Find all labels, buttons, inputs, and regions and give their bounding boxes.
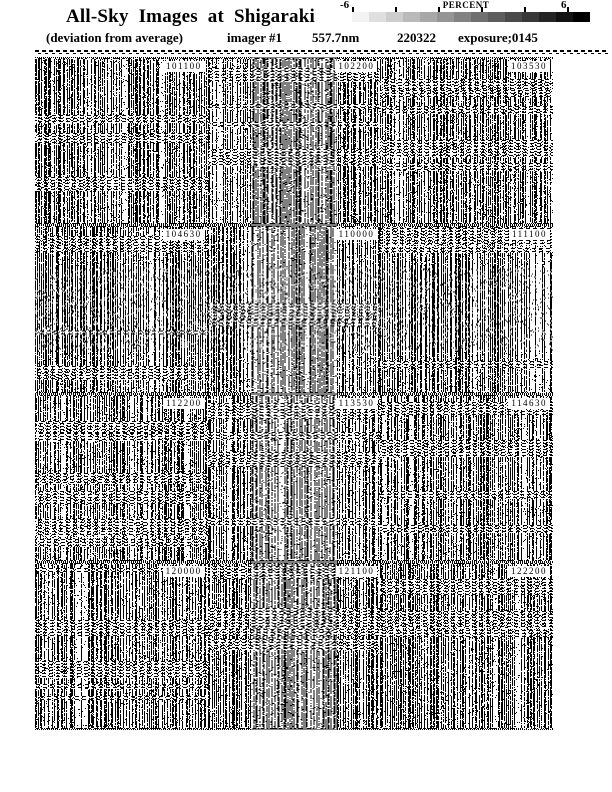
allsky-image — [208, 394, 381, 562]
colorbar-min-label: -6 — [340, 0, 349, 11]
allsky-figure: All-Sky Images at Shigaraki (deviation f… — [0, 0, 612, 792]
allsky-image-cell: 104630 — [35, 225, 208, 393]
colorbar-tick — [567, 7, 569, 12]
allsky-image — [380, 562, 553, 730]
timestamp-label: 101100 — [163, 61, 205, 72]
timestamp-label: 113530 — [336, 398, 378, 409]
page-title: All-Sky Images at Shigaraki — [66, 6, 315, 28]
timestamp-label: 114630 — [508, 398, 550, 409]
colorbar-tick — [395, 7, 397, 12]
colorbar-max-label: 6 — [561, 0, 567, 11]
allsky-image — [35, 225, 208, 393]
allsky-image — [208, 57, 381, 225]
allsky-image-cell: 114630 — [380, 394, 553, 562]
allsky-image — [380, 394, 553, 562]
allsky-image — [208, 562, 381, 730]
timestamp-label: 120000 — [163, 566, 205, 577]
colorbar-tick — [481, 7, 483, 12]
allsky-image — [35, 57, 208, 225]
allsky-image — [380, 57, 553, 225]
allsky-image-cell: 102200 — [208, 57, 381, 225]
allsky-image — [380, 225, 553, 393]
timestamp-label: 104630 — [163, 229, 205, 240]
subtitle: (deviation from average) — [46, 30, 183, 46]
colorbar-tick — [438, 7, 440, 12]
colorbar-title: PERCENT — [406, 0, 526, 10]
allsky-image — [208, 225, 381, 393]
timestamp-label: 111100 — [509, 229, 550, 240]
timestamp-label: 122200 — [508, 566, 550, 577]
timestamp-label: 112200 — [163, 398, 205, 409]
allsky-image-cell: 113530 — [208, 394, 381, 562]
allsky-image-cell: 110000 — [208, 225, 381, 393]
allsky-image-cell: 122200 — [380, 562, 553, 730]
allsky-image-cell: 101100 — [35, 57, 208, 225]
timestamp-label: 103530 — [508, 61, 550, 72]
allsky-image-cell: 112200 — [35, 394, 208, 562]
wavelength-label: 557.7nm — [312, 30, 359, 46]
colorbar-strip — [352, 12, 590, 22]
timestamp-label: 102200 — [335, 61, 377, 72]
colorbar-tick — [352, 7, 354, 12]
colorbar: -6 PERCENT 6 — [340, 0, 596, 26]
allsky-image-cell: 121100 — [208, 562, 381, 730]
allsky-image-cell: 111100 — [380, 225, 553, 393]
allsky-image-cell: 120000 — [35, 562, 208, 730]
timestamp-label: 110000 — [336, 229, 378, 240]
date-label: 220322 — [397, 30, 436, 46]
allsky-image — [35, 394, 208, 562]
exposure-label: exposure;0145 — [458, 30, 538, 46]
colorbar-tick — [524, 7, 526, 12]
image-grid: 1011001022001035301046301100001111001122… — [35, 57, 553, 730]
imager-label: imager #1 — [227, 30, 282, 46]
timestamp-label: 121100 — [336, 566, 378, 577]
allsky-image — [35, 562, 208, 730]
allsky-image-cell: 103530 — [380, 57, 553, 225]
header-separator — [35, 50, 608, 55]
